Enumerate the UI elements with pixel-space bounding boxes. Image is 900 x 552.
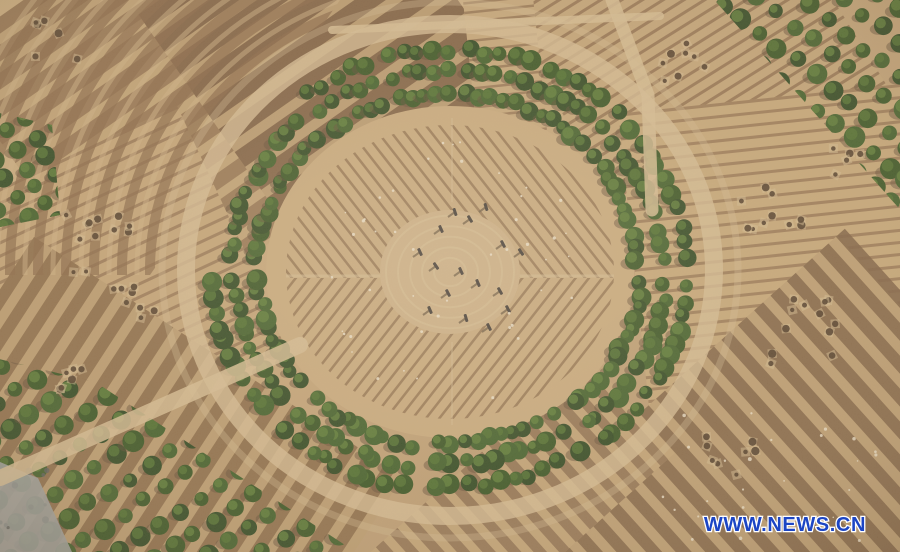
film-grain <box>0 0 900 552</box>
photo-paint-layers <box>0 0 900 552</box>
aerial-photo-canvas: WWW.NEWS.CN <box>0 0 900 552</box>
watermark-news-cn: WWW.NEWS.CN <box>704 514 866 536</box>
aerial-photo: WWW.NEWS.CN <box>0 0 900 552</box>
